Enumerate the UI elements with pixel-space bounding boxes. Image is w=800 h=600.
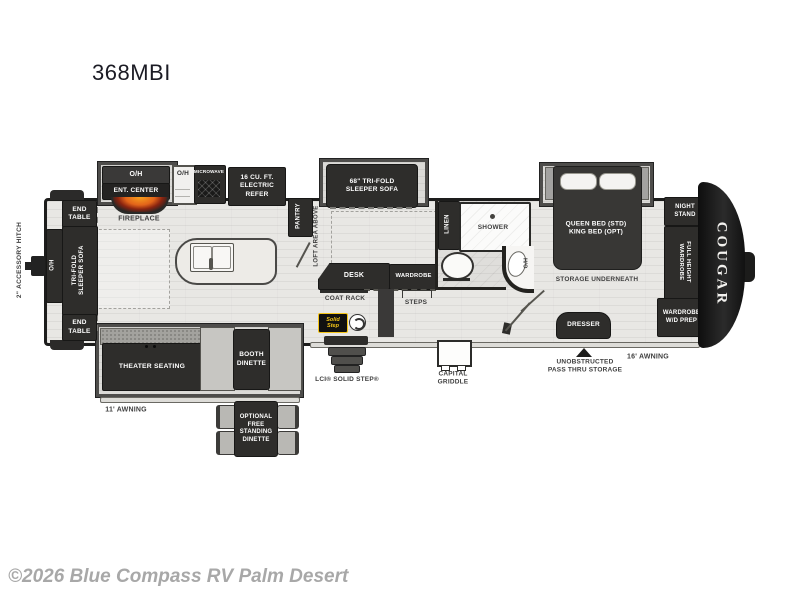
end-table-bottom: END TABLE bbox=[62, 314, 97, 341]
loft-label: LOFT AREA ABOVE bbox=[313, 205, 320, 266]
island-faucet-icon bbox=[209, 258, 213, 270]
booth-dinette-table: BOOTH DINETTE bbox=[233, 329, 270, 390]
dealer-watermark: ©2026 Blue Compass RV Palm Desert bbox=[8, 566, 348, 588]
pillow-right bbox=[599, 173, 636, 190]
accessory-hitch-label: 2" ACCESSORY HITCH bbox=[16, 222, 24, 298]
toilet-base bbox=[443, 278, 470, 281]
fireplace-icon bbox=[111, 197, 169, 214]
entry-step-2 bbox=[328, 347, 366, 356]
accessory-hitch-icon bbox=[31, 256, 45, 276]
tri-fold-sofa-label: TRI-FOLD SLEEPER SOFA bbox=[72, 245, 86, 295]
coat-rack-label: COAT RACK bbox=[325, 295, 365, 303]
booth-bench-left bbox=[200, 327, 235, 391]
desk: DESK bbox=[318, 263, 390, 290]
page-title: 368MBI bbox=[92, 60, 171, 86]
overhead-cabinet-2-shelf-lines bbox=[175, 183, 190, 198]
end-table-top: END TABLE bbox=[62, 200, 97, 228]
microwave-vent-grill bbox=[198, 180, 220, 197]
griddle-label: CAPITAL GRIDDLE bbox=[438, 371, 469, 388]
rear-bumper-top bbox=[50, 190, 84, 200]
pantry-label: PANTRY bbox=[295, 203, 302, 229]
sofa-68: 68" TRI-FOLD SLEEPER SOFA bbox=[326, 164, 418, 208]
pass-thru-arrow-icon bbox=[576, 348, 592, 357]
microwave-label: MICROWAVE bbox=[194, 169, 224, 175]
loft-footprint-living bbox=[94, 229, 170, 309]
storage-underneath-label: STORAGE UNDERNEATH bbox=[556, 276, 638, 284]
awning-16-line bbox=[310, 342, 700, 348]
cupholder-dot-2 bbox=[153, 345, 156, 348]
solid-step-label: LCI® SOLID STEP® bbox=[315, 376, 379, 384]
certification-badge-glyph bbox=[353, 318, 365, 330]
booth-bench-right bbox=[268, 327, 302, 391]
bath-overhead-label: O/H bbox=[524, 258, 531, 269]
dinette-chair-4 bbox=[277, 431, 299, 455]
bed-label: QUEEN BED (STD) KING BED (OPT) bbox=[566, 221, 627, 238]
entry-step-4 bbox=[334, 365, 360, 373]
capital-griddle-icon bbox=[437, 340, 472, 367]
staircase bbox=[378, 289, 394, 337]
mid-wardrobe: WARDROBE bbox=[389, 264, 438, 290]
loft-footprint-mid bbox=[331, 211, 437, 268]
steps-label: STEPS bbox=[405, 299, 427, 307]
sofa-68-slide-opening bbox=[330, 207, 412, 209]
island-sink-basin-right bbox=[212, 246, 231, 269]
fireplace-label: FIREPLACE bbox=[118, 214, 159, 223]
pillow-left bbox=[560, 173, 597, 190]
brand-logo: COUGAR bbox=[712, 222, 731, 307]
refrigerator: 16 CU. FT. ELECTRIC REFER bbox=[228, 167, 286, 206]
steps-bracket-icon bbox=[402, 290, 432, 298]
coat-rack-bar bbox=[320, 290, 368, 293]
awning-11-label: 11' AWNING bbox=[105, 405, 147, 414]
awning-16-label: 16' AWNING bbox=[627, 352, 669, 361]
theater-seating: THEATER SEATING bbox=[102, 343, 202, 391]
accessory-hitch-pin bbox=[25, 262, 32, 270]
full-height-wardrobe-label: FULL HEIGHT WARDROBE bbox=[677, 241, 691, 283]
overhead-cabinet-2-label: O/H bbox=[177, 170, 189, 178]
rear-overhead-label: O/H bbox=[49, 259, 56, 271]
entry-step-3 bbox=[331, 356, 363, 365]
floorplan-page: 368MBI ©2026 Blue Compass RV Palm Desert… bbox=[0, 0, 800, 600]
dresser: DRESSER bbox=[556, 312, 611, 339]
shower-label: SHOWER bbox=[478, 224, 508, 232]
entry-step-1 bbox=[324, 336, 368, 345]
toilet bbox=[441, 252, 474, 280]
cupholder-dot-1 bbox=[145, 345, 148, 348]
bathroom-wall-bottom bbox=[436, 287, 506, 290]
linen-label: LINEN bbox=[444, 214, 451, 234]
shower-head-icon bbox=[490, 214, 495, 219]
rear-bumper-bottom bbox=[50, 340, 84, 350]
dinette-chair-3 bbox=[277, 405, 299, 429]
solid-step-badge: Solid Step bbox=[318, 313, 348, 333]
pass-thru-label: UNOBSTRUCTED PASS THRU STORAGE bbox=[548, 359, 622, 376]
optional-dinette-table: OPTIONAL FREE STANDING DINETTE bbox=[234, 401, 278, 457]
